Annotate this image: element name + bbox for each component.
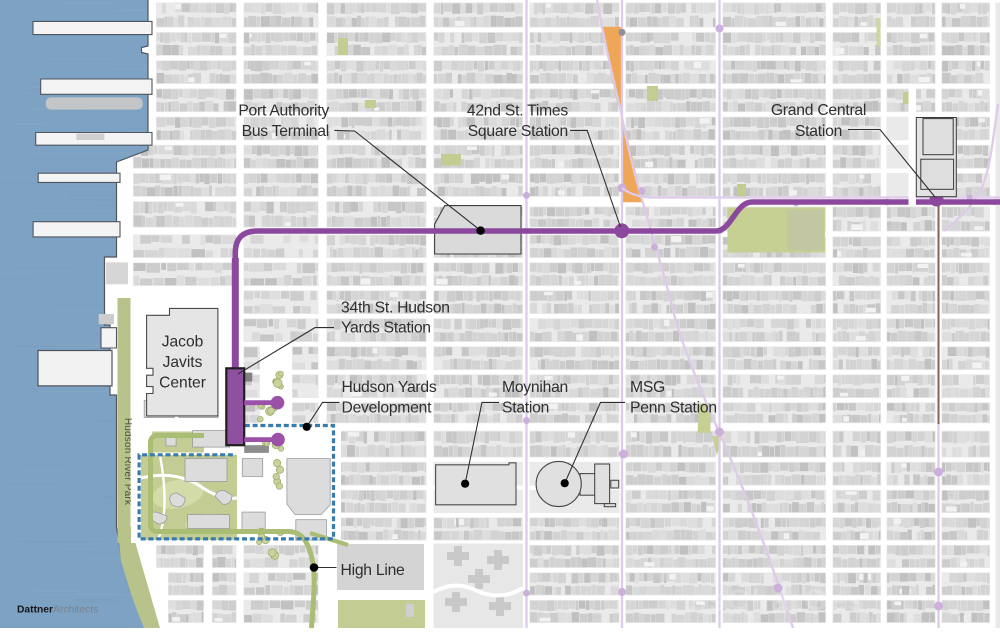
svg-text:ssCharGes: ssCharGes — [690, 584, 866, 617]
svg-text:MSG: MSG — [630, 379, 665, 396]
svg-text:Station: Station — [502, 399, 549, 416]
svg-text:34th St. Hudson: 34th St. Hudson — [341, 300, 450, 317]
svg-text:Yards Station: Yards Station — [341, 320, 431, 337]
svg-text:Grand Central: Grand Central — [771, 102, 866, 119]
svg-text:Hudson Yards: Hudson Yards — [342, 379, 437, 396]
svg-text:Square Station: Square Station — [468, 123, 568, 140]
svg-text:DattnerArchitects: DattnerArchitects — [17, 605, 98, 616]
svg-text:Moynihan: Moynihan — [502, 379, 568, 396]
svg-text:High Line: High Line — [341, 562, 406, 579]
svg-text:Bus Terminal: Bus Terminal — [242, 123, 329, 140]
svg-text:Javits: Javits — [163, 354, 203, 371]
svg-text:Station: Station — [795, 123, 842, 140]
svg-text:Development: Development — [342, 399, 433, 416]
svg-text:Center: Center — [159, 375, 206, 392]
svg-text:Jacob: Jacob — [162, 334, 204, 351]
svg-text:Port Authority: Port Authority — [238, 103, 329, 120]
svg-text:Penn Station: Penn Station — [630, 399, 717, 416]
svg-text:42nd St. Times: 42nd St. Times — [467, 103, 569, 120]
